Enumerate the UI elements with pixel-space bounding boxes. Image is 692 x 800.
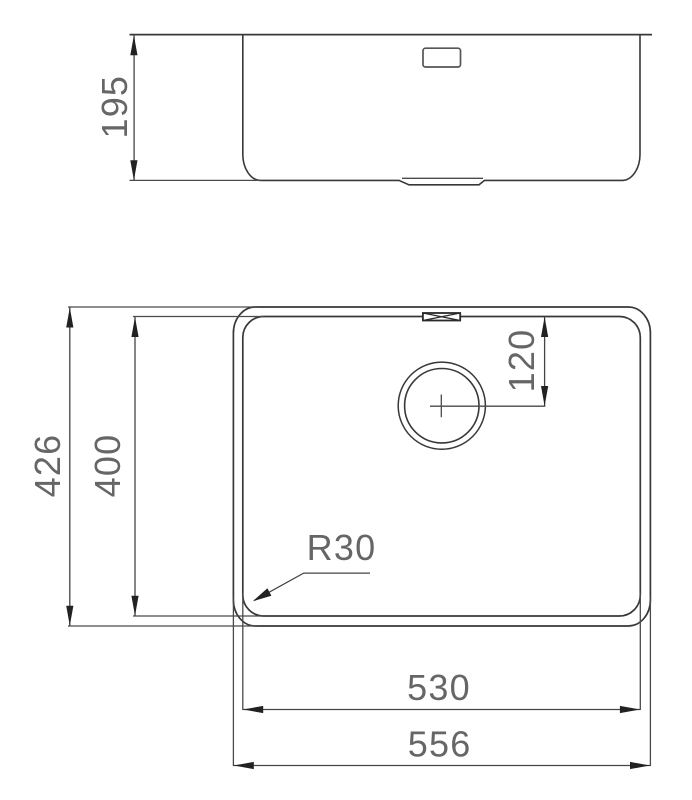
- svg-text:426: 426: [27, 434, 68, 498]
- svg-text:120: 120: [501, 329, 542, 393]
- svg-text:530: 530: [407, 667, 471, 708]
- svg-text:195: 195: [94, 75, 135, 139]
- svg-text:400: 400: [87, 434, 128, 498]
- svg-text:R30: R30: [307, 527, 377, 568]
- svg-text:556: 556: [408, 723, 472, 764]
